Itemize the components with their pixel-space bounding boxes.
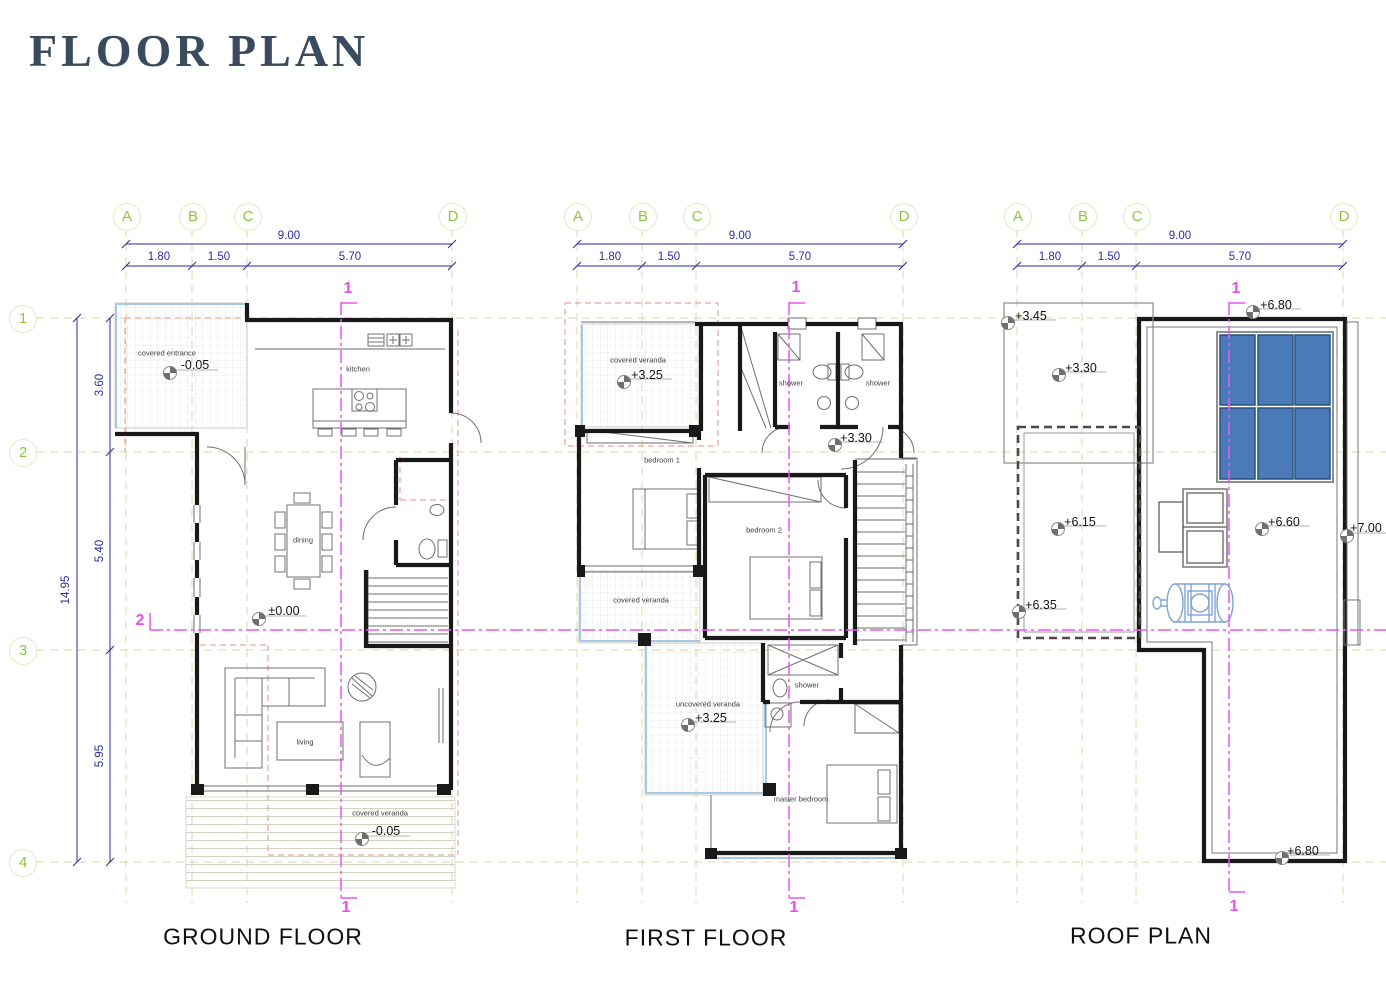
room-label-covered-veranda-first: covered veranda [610, 356, 666, 365]
room-label-covered-veranda-ground: covered veranda [352, 809, 408, 818]
thin-lines [194, 318, 918, 853]
plan-name-ground: GROUND FLOOR [163, 924, 363, 951]
solar-panels [1217, 332, 1333, 482]
dim-seg3-roof: 5.70 [1229, 251, 1251, 263]
ac-units [1159, 489, 1227, 567]
dim-seg1-ground: 1.80 [148, 251, 170, 263]
section-1-roof-top: 1 [1232, 280, 1241, 298]
dim-seg1-roof: 1.80 [1039, 251, 1061, 263]
level-ground-zero: ±0.00 [268, 604, 299, 618]
level-roof-700: +7.00 [1350, 521, 1382, 535]
level-first-landing: +3.30 [840, 431, 872, 445]
floor-plan-sheet: FLOOR PLAN A B C D A B C D A B C D 1 2 3… [0, 0, 1386, 986]
room-label-shower-left: shower [779, 379, 803, 388]
level-roof-680-top: +6.80 [1260, 298, 1292, 312]
grid-col-d-ground: D [439, 203, 467, 231]
dim-seg1-first: 1.80 [599, 251, 621, 263]
grid-col-d-first: D [890, 203, 918, 231]
room-label-bedroom-2: bedroom 2 [746, 526, 782, 535]
grid-col-c-roof: C [1123, 203, 1151, 231]
level-roof-660: +6.60 [1268, 515, 1300, 529]
section-1-ground-top: 1 [344, 280, 353, 298]
level-roof-635: +6.35 [1025, 598, 1057, 612]
dim-total-first: 9.00 [729, 230, 751, 242]
grid-col-b-first: B [629, 203, 657, 231]
grid-col-d-roof: D [1330, 203, 1358, 231]
dim-seg2-first: 1.50 [658, 251, 680, 263]
grid-row-3: 3 [9, 637, 37, 665]
grid-col-c-ground: C [234, 203, 262, 231]
dim-vseg3: 5.95 [94, 745, 106, 767]
level-roof-680-bottom: +6.80 [1287, 844, 1319, 858]
plan-name-roof: ROOF PLAN [1070, 923, 1212, 950]
room-label-bedroom-1: bedroom 1 [644, 456, 680, 465]
room-label-living: living [296, 738, 313, 747]
decking-ground-veranda [186, 797, 455, 888]
furniture-lines [225, 334, 897, 823]
level-roof-330: +3.30 [1065, 361, 1097, 375]
room-label-shower-mid: shower [795, 681, 819, 690]
plan-name-first: FIRST FLOOR [625, 925, 788, 952]
level-first-veranda: +3.25 [631, 368, 663, 382]
grid-row-2: 2 [9, 439, 37, 467]
level-roof-345: +3.45 [1015, 309, 1047, 323]
dim-seg2-roof: 1.50 [1098, 251, 1120, 263]
grid-col-c-first: C [683, 203, 711, 231]
grid-col-a-ground: A [113, 203, 141, 231]
section-2-left: 2 [136, 612, 145, 630]
level-roof-615: +6.15 [1064, 515, 1096, 529]
dim-total-ground: 9.00 [278, 230, 300, 242]
room-label-kitchen: kitchen [346, 365, 370, 374]
grid-col-b-roof: B [1069, 203, 1097, 231]
roof-veranda-outline [1004, 303, 1153, 463]
section-1-first-bottom: 1 [790, 899, 799, 917]
room-label-uncovered-veranda: uncovered veranda [676, 700, 740, 709]
grid-col-a-first: A [564, 203, 592, 231]
dim-seg3-ground: 5.70 [339, 251, 361, 263]
section-1-ground-bottom: 1 [342, 899, 351, 917]
room-label-covered-veranda-mid: covered veranda [613, 596, 669, 605]
dim-vseg1: 3.60 [94, 374, 106, 396]
room-label-shower-right: shower [866, 379, 890, 388]
tiles-covered-veranda-mid [579, 571, 700, 643]
section-1-first-top: 1 [792, 279, 801, 297]
room-label-covered-entrance: covered entrance [138, 349, 196, 358]
dim-seg3-first: 5.70 [789, 251, 811, 263]
floor-plan-drawing [0, 0, 1386, 986]
dim-vseg2: 5.40 [94, 540, 106, 562]
grid-col-a-roof: A [1004, 203, 1032, 231]
grid-col-b-ground: B [179, 203, 207, 231]
dim-total-vertical: 14.95 [60, 576, 72, 605]
grid-row-1: 1 [9, 305, 37, 333]
room-label-dining: dining [293, 536, 313, 545]
level-ground-veranda: -0.05 [372, 824, 401, 838]
dim-seg2-ground: 1.50 [208, 251, 230, 263]
water-tank [1153, 584, 1233, 622]
section-1-roof-bottom: 1 [1230, 898, 1239, 916]
grid-row-4: 4 [9, 849, 37, 877]
level-entrance: -0.05 [181, 358, 210, 372]
dim-total-roof: 9.00 [1169, 230, 1191, 242]
level-first-uncovered: +3.25 [695, 711, 727, 725]
room-label-master-bedroom: master bedroom [774, 795, 829, 804]
page-title: FLOOR PLAN [29, 24, 369, 77]
